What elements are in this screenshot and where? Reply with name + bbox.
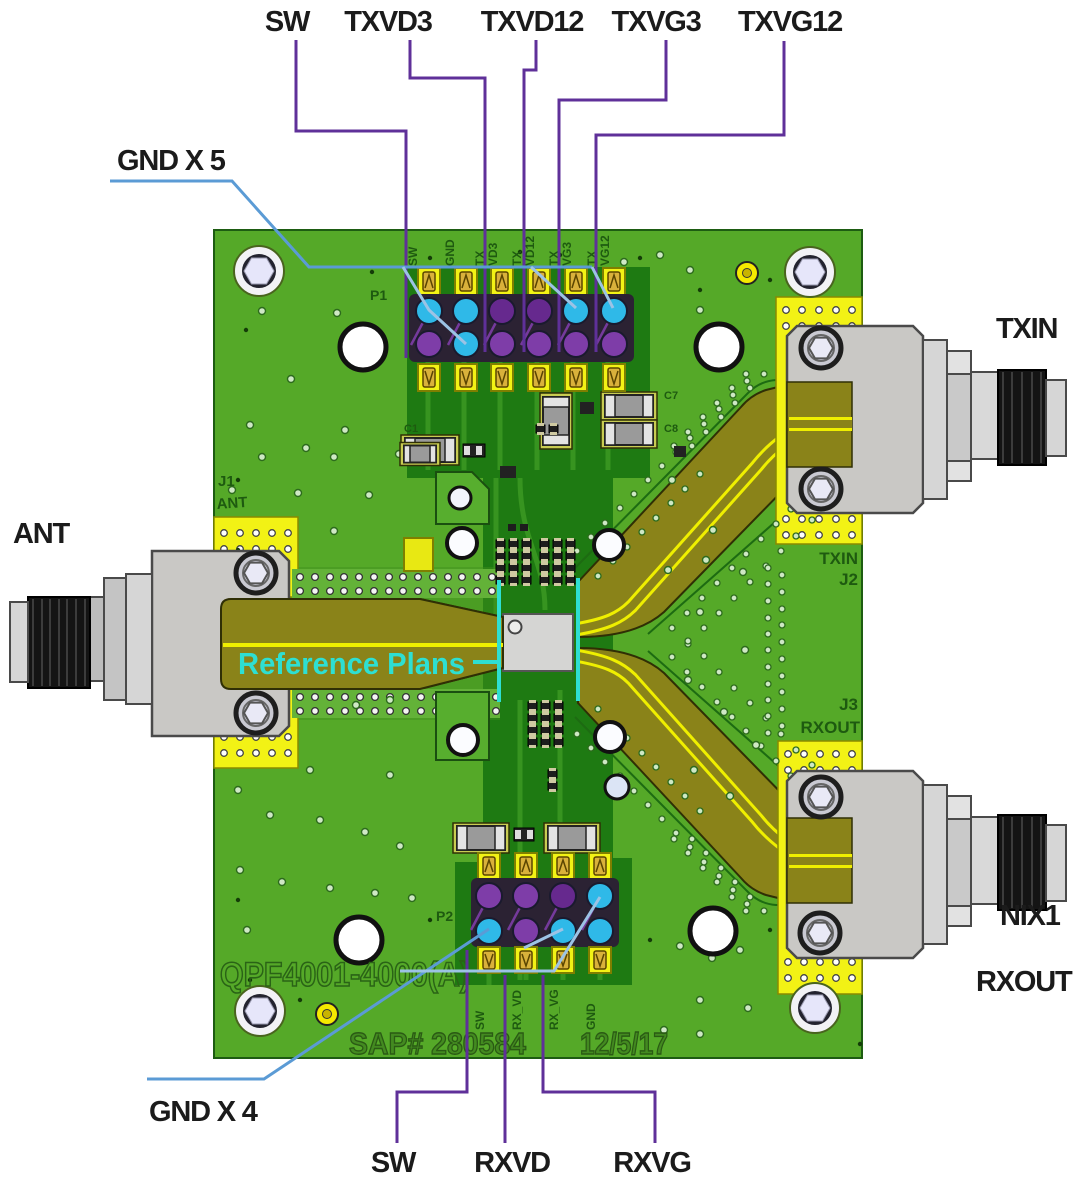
- svg-text:J2: J2: [839, 570, 858, 589]
- svg-text:GND: GND: [443, 239, 457, 266]
- svg-text:NIX1: NIX1: [1000, 900, 1061, 932]
- svg-text:P1: P1: [370, 287, 387, 303]
- svg-text:VD3: VD3: [486, 242, 500, 266]
- svg-text:SW: SW: [371, 1147, 417, 1179]
- svg-text:J1: J1: [218, 473, 235, 490]
- svg-text:P2: P2: [436, 908, 453, 924]
- svg-text:C7: C7: [664, 390, 678, 402]
- svg-text:TXVG3: TXVG3: [611, 6, 701, 38]
- svg-text:VG3: VG3: [560, 242, 574, 266]
- svg-text:QPF4001-4000(A): QPF4001-4000(A): [220, 956, 470, 994]
- svg-text:VG12: VG12: [598, 235, 612, 266]
- svg-text:RXVD: RXVD: [474, 1147, 550, 1179]
- svg-text:SW: SW: [265, 6, 311, 38]
- svg-text:TXIN: TXIN: [819, 549, 858, 568]
- svg-text:RX_VD: RX_VD: [510, 990, 524, 1030]
- svg-text:SAP# 280584: SAP# 280584: [349, 1026, 527, 1061]
- svg-text:ANT: ANT: [13, 518, 70, 550]
- svg-text:C1: C1: [404, 423, 418, 435]
- svg-text:TXVD12: TXVD12: [481, 6, 583, 38]
- svg-text:C8: C8: [664, 423, 678, 435]
- svg-text:J3: J3: [839, 695, 858, 714]
- svg-text:RXOUT: RXOUT: [801, 718, 861, 737]
- svg-text:SW: SW: [406, 246, 420, 266]
- svg-text:TXVD3: TXVD3: [344, 6, 433, 38]
- svg-text:GND X 4: GND X 4: [149, 1096, 258, 1128]
- svg-text:TXIN: TXIN: [996, 313, 1057, 345]
- svg-text:ANT: ANT: [216, 494, 248, 513]
- svg-text:RXVG: RXVG: [613, 1147, 690, 1179]
- svg-text:Reference Plans: Reference Plans: [238, 646, 465, 681]
- svg-text:TXVG12: TXVG12: [738, 6, 842, 38]
- svg-text:RX_VG: RX_VG: [547, 989, 561, 1030]
- svg-text:GND X 5: GND X 5: [117, 145, 226, 177]
- svg-text:TX: TX: [510, 251, 524, 266]
- svg-text:12/5/17: 12/5/17: [580, 1026, 668, 1061]
- svg-text:RXOUT: RXOUT: [976, 966, 1073, 998]
